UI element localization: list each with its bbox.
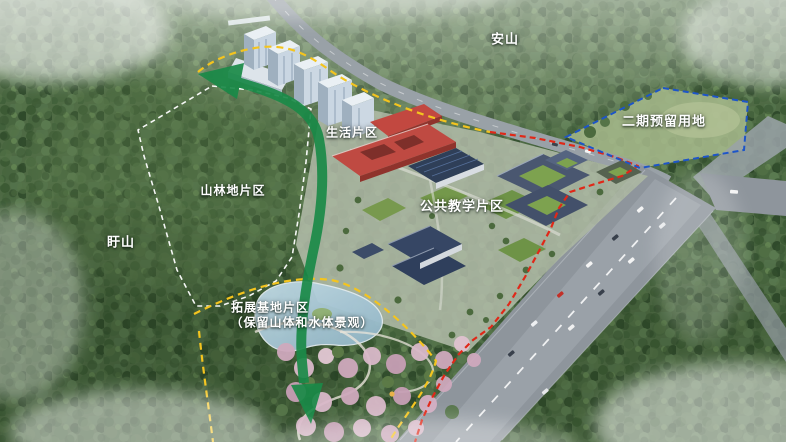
label-phase2-reserved-land: 二期预留用地 — [622, 111, 706, 130]
label-living-zone: 生活片区 — [326, 124, 378, 141]
pavilion — [389, 391, 394, 396]
aerial-rendering-canvas — [0, 0, 786, 442]
label-teaching-zone: 公共教学片区 — [420, 196, 504, 215]
label-forest-zone: 山林地片区 — [200, 182, 265, 199]
label-expansion-zone-note: （保留山体和水体景观） — [230, 314, 373, 331]
label-mountain-anshan: 安山 — [491, 29, 519, 48]
master-plan-rendering: 安山 二期预留用地 生活片区 山林地片区 盱山 公共教学片区 拓展基地片区 （保… — [0, 0, 786, 442]
label-mountain-xushan: 盱山 — [107, 232, 135, 251]
